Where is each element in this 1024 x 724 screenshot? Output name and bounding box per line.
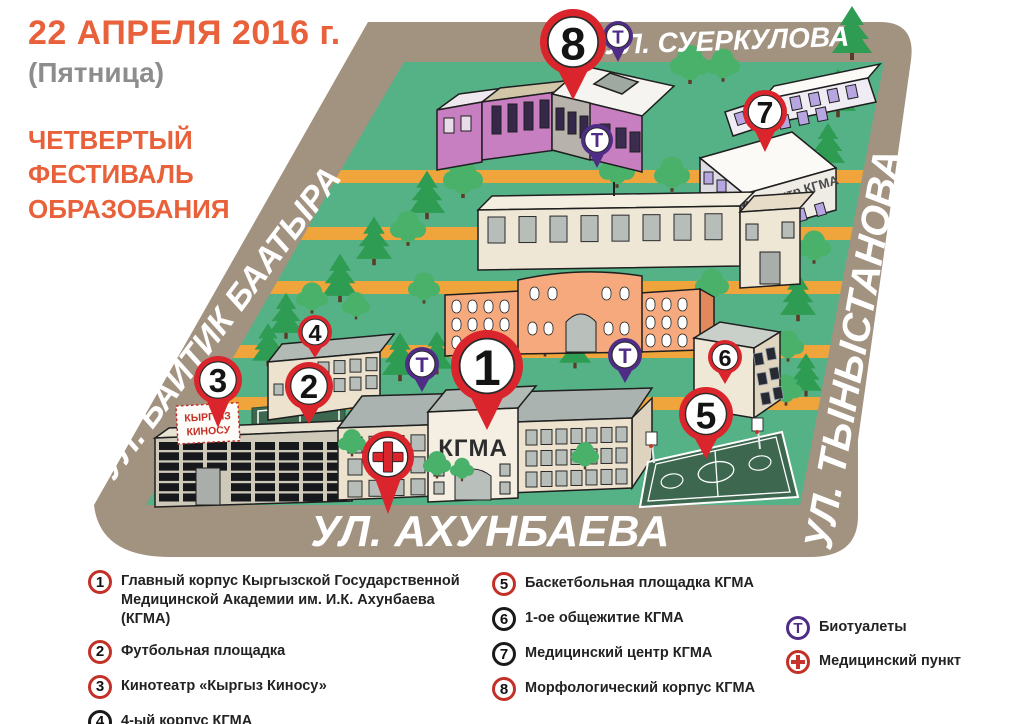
legend-column-symbols: Т Биотуалеты Медицинский пункт [786, 616, 961, 674]
legend-number-circle: 4 [88, 710, 112, 724]
legend-item-text: Медицинский центр КГМА [525, 642, 712, 663]
medpoint-cross-icon [786, 650, 810, 674]
legend-item-toilets: Т Биотуалеты [786, 616, 961, 640]
legend-medpoint-label: Медицинский пункт [819, 650, 961, 671]
legend-number-circle: 8 [492, 677, 516, 701]
kgma-facade-label: КГМА [438, 435, 508, 462]
legend-item-8: 8Морфологический корпус КГМА [492, 677, 792, 701]
legend-item-text: Морфологический корпус КГМА [525, 677, 755, 698]
legend-item-text: Футбольная площадка [121, 640, 285, 661]
svg-text:Т: Т [619, 344, 632, 368]
legend-column-1: 1Главный корпус Кыргызской Государственн… [88, 570, 486, 724]
svg-text:2: 2 [300, 369, 318, 406]
cinema-sign: КЫРГЫЗ КИНОСУ [176, 403, 240, 444]
svg-text:1: 1 [473, 340, 501, 396]
poster-canvas: 22 АПРЕЛЯ 2016 г. (Пятница) ЧЕТВЕРТЫЙ ФЕ… [0, 0, 1024, 724]
svg-text:7: 7 [757, 97, 774, 130]
legend-item-text: 4-ый корпус КГМА [121, 710, 252, 724]
legend-item-5: 5Баскетбольная площадка КГМА [492, 572, 792, 596]
legend-item-4: 44-ый корпус КГМА [88, 710, 486, 724]
legend-toilets-label: Биотуалеты [819, 616, 907, 637]
legend-item-7: 7Медицинский центр КГМА [492, 642, 792, 666]
svg-text:Т: Т [591, 130, 603, 152]
svg-text:Т: Т [416, 353, 429, 377]
legend-item-text: 1-ое общежитие КГМА [525, 607, 684, 628]
svg-text:5: 5 [696, 395, 717, 437]
legend-item-6: 61-ое общежитие КГМА [492, 607, 792, 631]
legend-number-circle: 2 [88, 640, 112, 664]
legend-number-circle: 7 [492, 642, 516, 666]
toilet-symbol-icon: Т [786, 616, 810, 640]
legend-number-circle: 6 [492, 607, 516, 631]
legend-number-circle: 5 [492, 572, 516, 596]
legend-column-2: 5Баскетбольная площадка КГМА61-ое общежи… [492, 572, 792, 701]
legend-item-text: Главный корпус Кыргызской Государственно… [121, 570, 486, 629]
legend-item-text: Кинотеатр «Кыргыз Киносу» [121, 675, 327, 696]
svg-text:4: 4 [308, 320, 321, 346]
svg-text:3: 3 [209, 363, 227, 400]
legend-item-1: 1Главный корпус Кыргызской Государственн… [88, 570, 486, 629]
legend-item-text: Баскетбольная площадка КГМА [525, 572, 754, 593]
legend-number-circle: 1 [88, 570, 112, 594]
street-label-bottom: УЛ. АХУНБАЕВА [310, 507, 669, 556]
legend-number-circle: 3 [88, 675, 112, 699]
cinema-sign-line2: КИНОСУ [186, 424, 231, 438]
svg-text:Т: Т [612, 26, 624, 47]
legend-item-3: 3Кинотеатр «Кыргыз Киносу» [88, 675, 486, 699]
legend-item-2: 2Футбольная площадка [88, 640, 486, 664]
legend-item-medpoint: Медицинский пункт [786, 650, 961, 674]
svg-text:8: 8 [560, 18, 585, 69]
svg-text:6: 6 [718, 345, 731, 371]
